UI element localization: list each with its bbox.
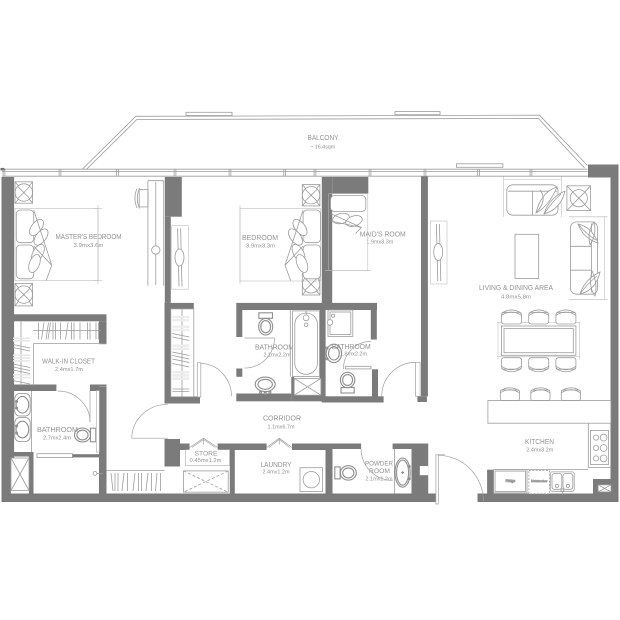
svg-text:BEDROOM: BEDROOM xyxy=(242,235,278,242)
svg-text:Fridge: Fridge xyxy=(505,479,515,483)
svg-text:3.9mx3.6m: 3.9mx3.6m xyxy=(74,243,104,249)
svg-text:ROOM: ROOM xyxy=(369,468,390,475)
svg-text:1.9mx3.3m: 1.9mx3.3m xyxy=(366,240,393,246)
svg-text:LAUNDRY: LAUNDRY xyxy=(261,462,292,469)
svg-text:1.1mx6.7m: 1.1mx6.7m xyxy=(268,424,295,430)
svg-text:WALK-IN CLOSET: WALK-IN CLOSET xyxy=(42,359,96,366)
svg-text:4.8mx5.8m: 4.8mx5.8m xyxy=(501,294,531,300)
svg-text:BATHROOM: BATHROOM xyxy=(37,427,78,434)
svg-text:CORRIDOR: CORRIDOR xyxy=(263,415,301,422)
svg-text:BATHROOM: BATHROOM xyxy=(255,345,294,352)
svg-text:MAID'S ROOM: MAID'S ROOM xyxy=(360,231,406,238)
svg-text:2.4mx1.7m: 2.4mx1.7m xyxy=(55,367,83,373)
svg-text:2.7mx2.4m: 2.7mx2.4m xyxy=(43,435,71,441)
svg-text:POWDER: POWDER xyxy=(365,460,393,467)
svg-text:LIVING & DINING AREA: LIVING & DINING AREA xyxy=(479,283,553,292)
svg-text:STORE: STORE xyxy=(195,451,218,458)
svg-text:3.9mx3.3m: 3.9mx3.3m xyxy=(246,243,275,249)
svg-text:BALCONY: BALCONY xyxy=(308,135,339,142)
svg-text:0.45mx1.2m: 0.45mx1.2m xyxy=(190,458,222,464)
svg-text:MASTER'S BEDROOM: MASTER'S BEDROOM xyxy=(56,234,122,241)
svg-text:Dishwasher: Dishwasher xyxy=(531,479,547,483)
svg-text:2.4mx3.2m: 2.4mx3.2m xyxy=(526,447,553,453)
svg-text:KITCHEN: KITCHEN xyxy=(525,439,554,446)
svg-text:~ 16.4sqm: ~ 16.4sqm xyxy=(310,144,335,150)
svg-text:1.8mx2.2m: 1.8mx2.2m xyxy=(340,351,367,357)
svg-text:2.4mx1.2m: 2.4mx1.2m xyxy=(263,470,290,476)
